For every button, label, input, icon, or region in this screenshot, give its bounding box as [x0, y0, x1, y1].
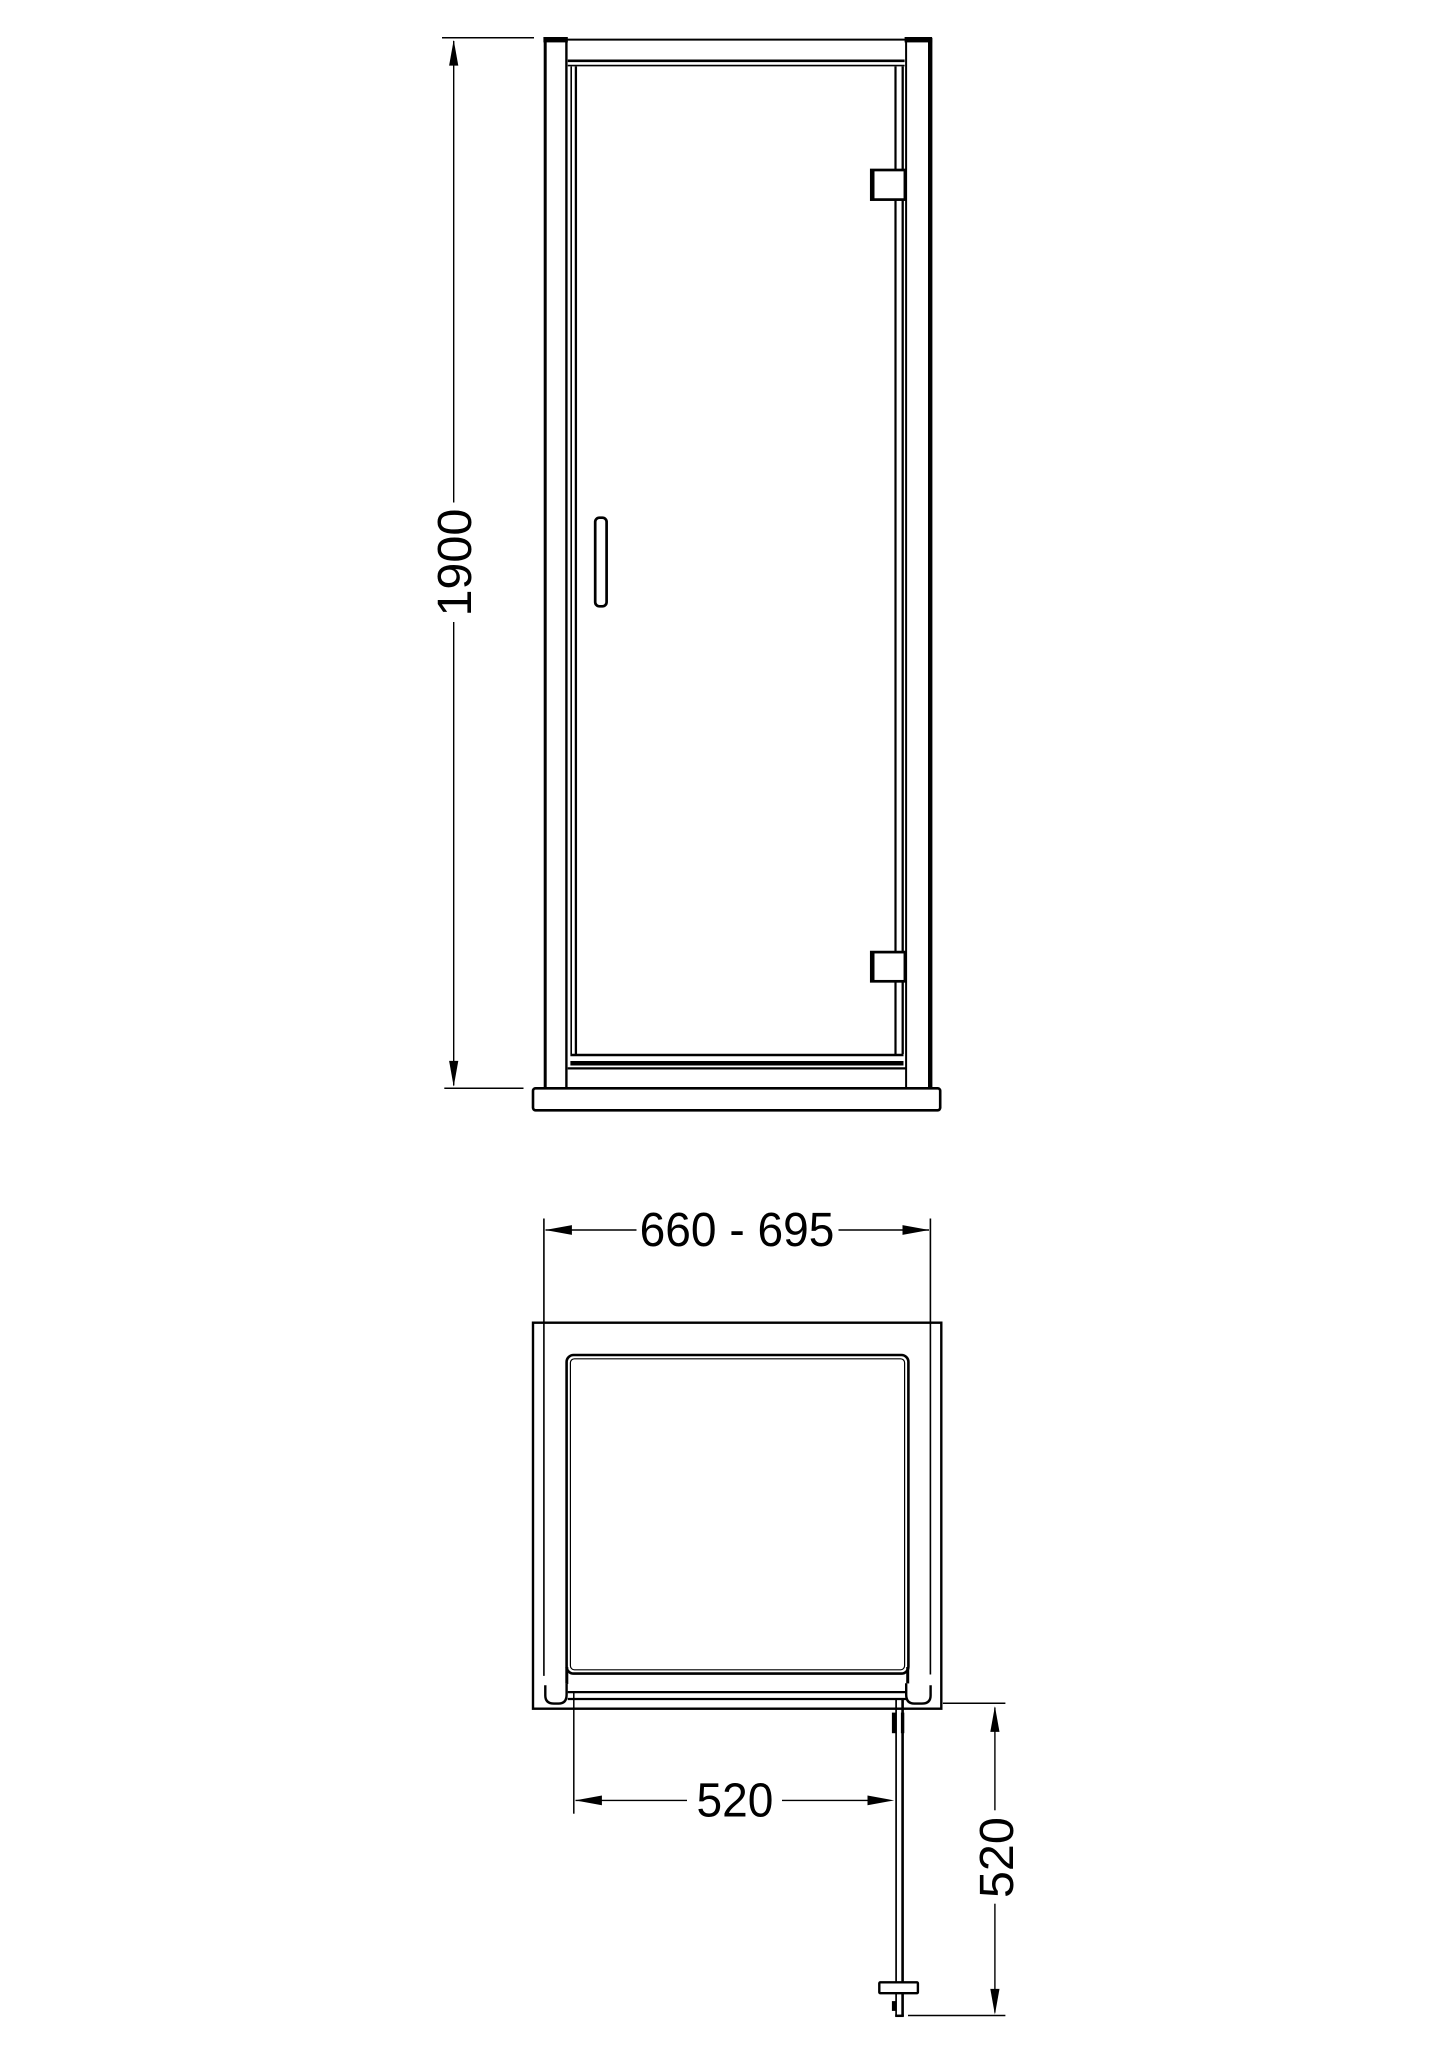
svg-text:520: 520 — [970, 1817, 1024, 1898]
svg-text:520: 520 — [696, 1773, 773, 1827]
svg-text:660 - 695: 660 - 695 — [640, 1203, 835, 1257]
svg-text:1900: 1900 — [428, 509, 482, 617]
